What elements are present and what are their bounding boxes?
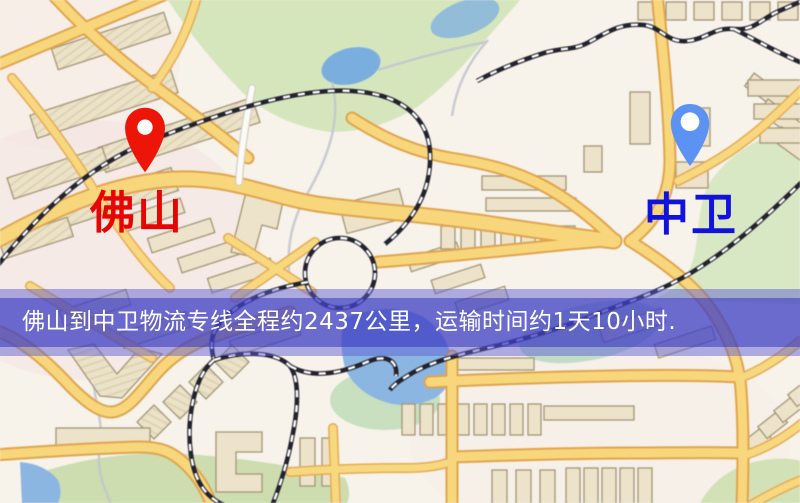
origin-city-label: 佛山 (90, 176, 184, 241)
route-map-image: 佛山 中卫 佛山到中卫物流专线全程约2437公里，运输时间约1天10小时. (0, 0, 800, 503)
pin-body (125, 108, 165, 172)
map-background (0, 0, 800, 503)
origin-pin[interactable] (122, 105, 168, 175)
pin-hole (137, 120, 152, 135)
route-info-strip: 佛山到中卫物流专线全程约2437公里，运输时间约1天10小时. (0, 298, 800, 347)
origin-pin-icon (122, 105, 168, 175)
destination-pin-icon (667, 103, 713, 167)
destination-city-label: 中卫 (644, 178, 738, 243)
destination-pin[interactable] (667, 103, 713, 167)
pin-hole (681, 112, 700, 131)
route-info-text: 佛山到中卫物流专线全程约2437公里，运输时间约1天10小时. (22, 298, 676, 347)
route-info-banner: 佛山到中卫物流专线全程约2437公里，运输时间约1天10小时. (0, 289, 800, 356)
